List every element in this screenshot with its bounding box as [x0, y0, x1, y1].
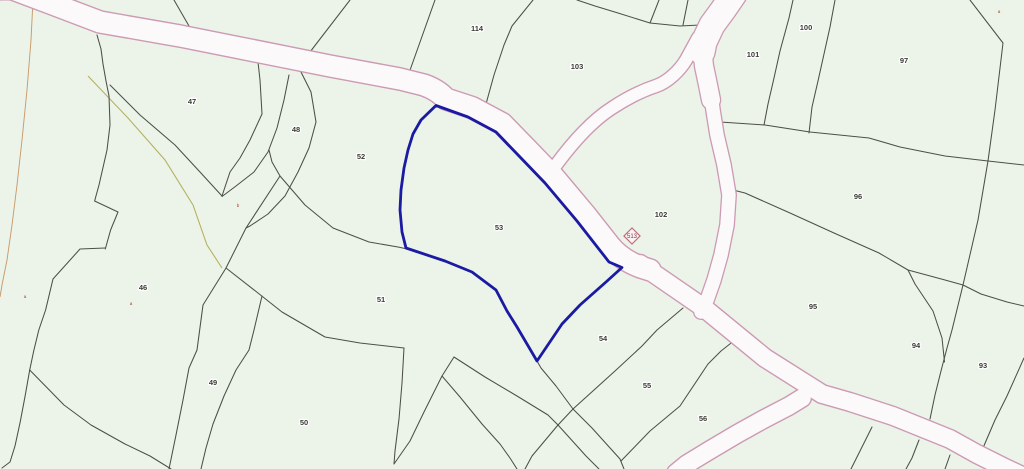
svg-text:56: 56 [699, 414, 707, 423]
svg-text:b: b [237, 203, 240, 208]
svg-text:114: 114 [471, 24, 484, 33]
svg-text:93: 93 [979, 361, 987, 370]
svg-text:46: 46 [139, 283, 147, 292]
svg-text:96: 96 [854, 192, 862, 201]
svg-text:54: 54 [599, 334, 608, 343]
svg-text:102: 102 [655, 210, 668, 219]
svg-text:47: 47 [188, 97, 196, 106]
svg-text:50: 50 [300, 418, 308, 427]
svg-text:94: 94 [912, 341, 921, 350]
svg-text:55: 55 [643, 381, 651, 390]
svg-text:52: 52 [357, 152, 365, 161]
svg-text:103: 103 [571, 62, 584, 71]
svg-text:53: 53 [495, 223, 503, 232]
svg-text:95: 95 [809, 302, 817, 311]
svg-text:51: 51 [377, 295, 385, 304]
svg-text:48: 48 [292, 125, 300, 134]
svg-text:a: a [130, 301, 133, 306]
svg-text:a: a [998, 9, 1001, 14]
svg-text:100: 100 [800, 23, 813, 32]
svg-text:101: 101 [747, 50, 760, 59]
svg-text:513: 513 [627, 234, 638, 240]
svg-text:a: a [24, 294, 27, 299]
svg-text:97: 97 [900, 56, 908, 65]
svg-text:49: 49 [209, 378, 217, 387]
